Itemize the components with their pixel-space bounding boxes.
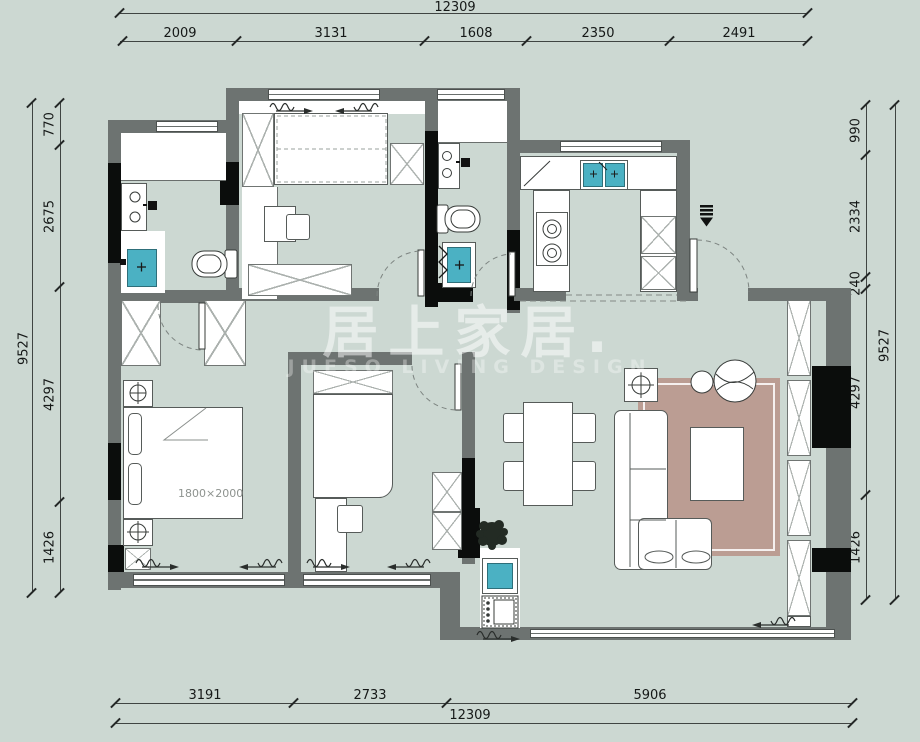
plant-icon xyxy=(476,520,508,550)
threshold-line xyxy=(520,295,688,301)
sink-icon xyxy=(130,152,452,223)
toilet-icon xyxy=(437,205,480,233)
sofa-detail xyxy=(630,413,710,568)
door-swing-icon xyxy=(158,240,749,410)
shower-door-icon xyxy=(137,246,464,278)
cooktop-burner-icon xyxy=(524,161,561,262)
toilet-icon xyxy=(192,250,237,278)
tatami-dashed xyxy=(277,116,386,182)
bed-fold-line xyxy=(164,408,208,440)
entrance-arrow-icon xyxy=(700,205,713,227)
detail-layer xyxy=(0,0,920,742)
floorplan-canvas: 12309 2009 3131 1608 2350 2491 9527 770 … xyxy=(0,0,920,742)
ball-chair xyxy=(714,360,756,402)
door-leaf xyxy=(199,239,697,410)
washer-icon xyxy=(482,596,518,628)
lamp-icon xyxy=(127,372,654,543)
kitchen-faucet-icon xyxy=(590,162,618,178)
faucet-icon xyxy=(120,158,470,265)
side-table xyxy=(691,371,713,393)
